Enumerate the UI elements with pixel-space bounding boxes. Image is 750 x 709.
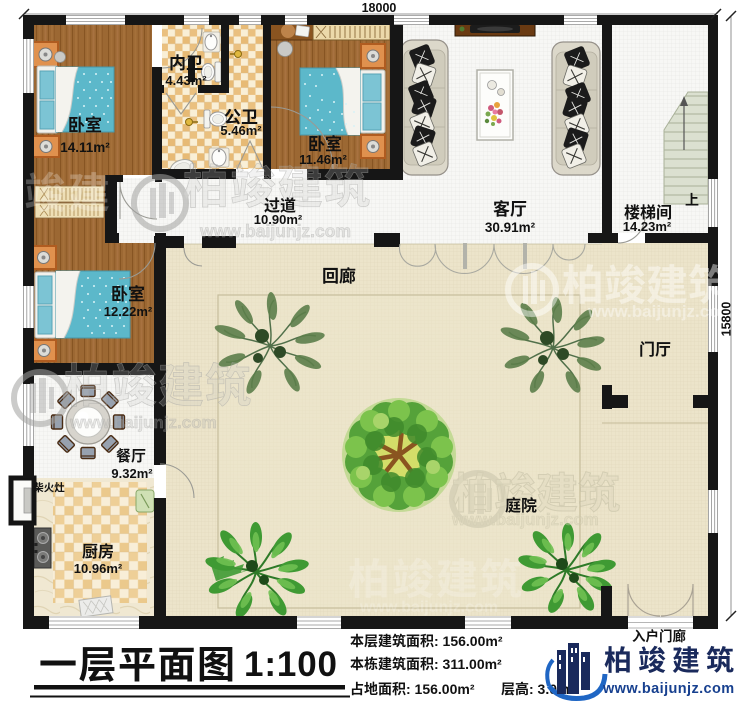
svg-text:1:100: 1:100: [244, 636, 337, 687]
svg-text:上: 上: [685, 190, 699, 210]
svg-text:18000: 18000: [362, 0, 397, 16]
svg-text:www.baijunjz.com: www.baijunjz.com: [69, 408, 217, 433]
svg-text:11.46m²: 11.46m²: [299, 149, 347, 168]
svg-text:庭院: 庭院: [505, 492, 537, 516]
svg-text:占地面积: 156.00m²: 占地面积: 156.00m²: [350, 679, 475, 699]
svg-text:门厅: 门厅: [639, 336, 671, 360]
svg-text:本栋建筑面积: 311.00m²: 本栋建筑面积: 311.00m²: [350, 654, 502, 674]
svg-text:10.96m²: 10.96m²: [74, 558, 123, 577]
svg-text:柏竣建筑: 柏竣建筑: [604, 639, 740, 679]
svg-text:12.22m²: 12.22m²: [104, 301, 153, 320]
svg-text:www.baijunjz.com: www.baijunjz.com: [359, 593, 498, 617]
svg-text:30.91m²: 30.91m²: [485, 216, 536, 236]
svg-text:一层平面图: 一层平面图: [39, 634, 235, 689]
svg-text:www.baijunjz.com: www.baijunjz.com: [602, 677, 735, 698]
svg-text:竣建: 竣建: [24, 160, 112, 221]
svg-text:14.23m²: 14.23m²: [623, 216, 672, 235]
svg-text:柏竣建筑: 柏竣建筑: [64, 350, 252, 416]
svg-text:卧室: 卧室: [68, 111, 102, 136]
svg-text:www.baijunjz.com: www.baijunjz.com: [587, 297, 735, 322]
svg-text:回廊: 回廊: [322, 262, 356, 287]
svg-text:柴火灶: 柴火灶: [33, 480, 65, 495]
svg-text:15800: 15800: [716, 302, 735, 337]
svg-text:4.43m²: 4.43m²: [165, 70, 207, 89]
svg-text:5.46m²: 5.46m²: [220, 120, 262, 139]
svg-text:14.11m²: 14.11m²: [60, 136, 110, 156]
svg-text:9.32m²: 9.32m²: [111, 463, 153, 482]
svg-text:10.90m²: 10.90m²: [254, 209, 303, 228]
svg-text:本层建筑面积: 156.00m²: 本层建筑面积: 156.00m²: [350, 631, 503, 651]
